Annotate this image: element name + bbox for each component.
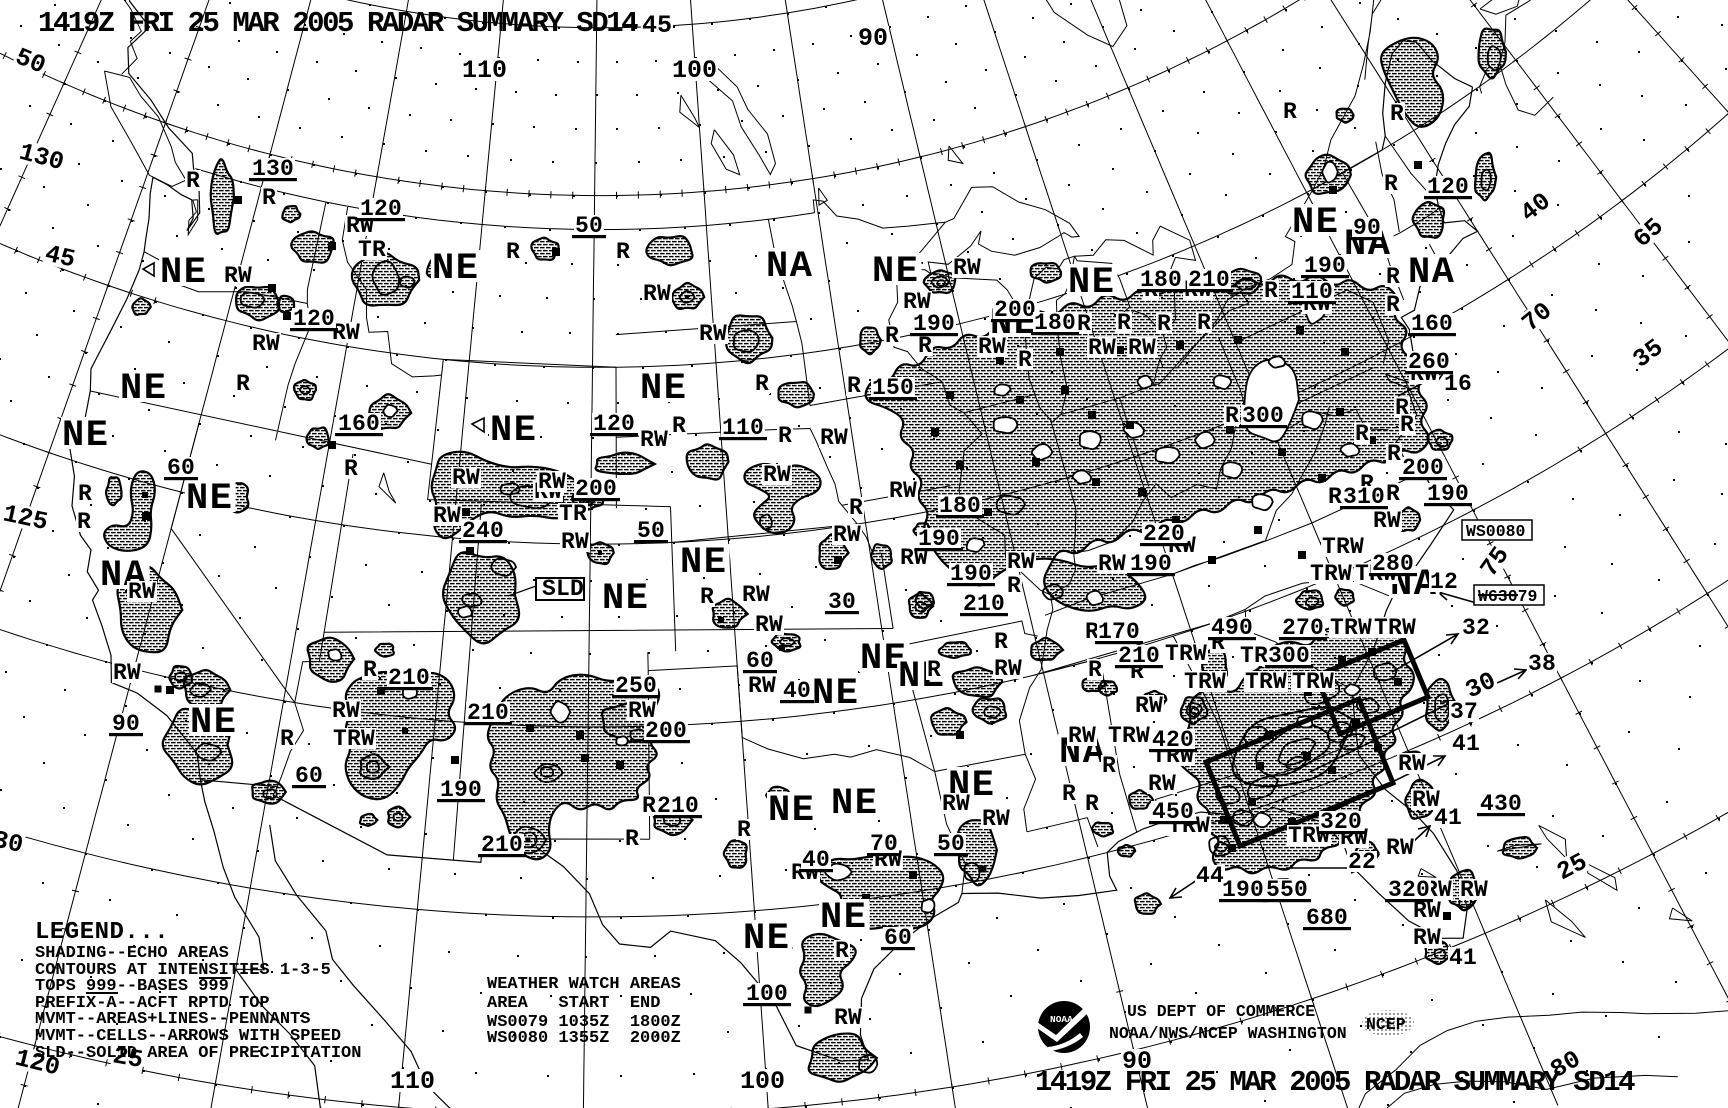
svg-text:RW: RW xyxy=(128,579,156,605)
svg-text:RW: RW xyxy=(224,263,252,289)
svg-text:WEATHER WATCH AREAS: WEATHER WATCH AREAS xyxy=(487,975,681,994)
svg-text:NE: NE xyxy=(1068,262,1115,304)
svg-text:R: R xyxy=(778,423,792,449)
svg-text:W63079: W63079 xyxy=(1478,587,1537,606)
svg-text:RW: RW xyxy=(833,522,861,548)
svg-text:R: R xyxy=(1062,781,1076,807)
svg-text:41: 41 xyxy=(1434,805,1462,831)
svg-text:R: R xyxy=(1085,791,1099,817)
svg-text:R: R xyxy=(700,584,714,610)
svg-text:TRW: TRW xyxy=(1292,669,1334,695)
svg-text:NE: NE xyxy=(831,783,878,825)
svg-text:NE: NE xyxy=(602,578,649,620)
svg-text:SLD: SLD xyxy=(542,576,584,602)
svg-text:NE: NE xyxy=(432,248,479,290)
svg-text:NE: NE xyxy=(120,368,167,410)
svg-text:TR: TR xyxy=(1240,643,1268,669)
svg-text:RW: RW xyxy=(643,281,671,307)
svg-text:RW: RW xyxy=(953,255,981,281)
svg-text:R: R xyxy=(344,456,358,482)
svg-text:TRW: TRW xyxy=(1165,641,1207,667)
svg-text:NE: NE xyxy=(62,415,109,457)
svg-text:WS0080 1355Z 2000Z: WS0080 1355Z 2000Z xyxy=(487,1029,681,1048)
svg-text:RW: RW xyxy=(942,791,970,817)
svg-text:R: R xyxy=(755,371,769,397)
svg-text:TR: TR xyxy=(559,501,587,527)
svg-text:RW: RW xyxy=(433,503,461,529)
svg-text:41: 41 xyxy=(1452,731,1480,757)
svg-text:R: R xyxy=(363,657,377,683)
svg-text:TRW: TRW xyxy=(1184,669,1226,695)
svg-text:100: 100 xyxy=(740,1067,785,1096)
svg-text:R: R xyxy=(885,323,899,349)
svg-text:R: R xyxy=(737,817,751,843)
svg-text:RW: RW xyxy=(332,320,360,346)
svg-text:RW: RW xyxy=(699,321,727,347)
svg-text:NE: NE xyxy=(1292,202,1339,244)
svg-text:RW: RW xyxy=(1373,508,1401,534)
svg-text:R: R xyxy=(642,793,656,819)
svg-text:NE: NE xyxy=(872,251,919,293)
svg-text:R: R xyxy=(77,509,91,535)
svg-text:R: R xyxy=(835,938,849,964)
svg-text:R: R xyxy=(1088,657,1102,683)
svg-text:RW: RW xyxy=(763,462,791,488)
svg-text:RW: RW xyxy=(1068,723,1096,749)
svg-text:22: 22 xyxy=(1348,849,1376,875)
svg-text:R: R xyxy=(1386,481,1400,507)
svg-text:R: R xyxy=(1007,573,1021,599)
svg-text:R: R xyxy=(616,239,630,265)
svg-text:RW: RW xyxy=(1460,877,1488,903)
svg-text:US DEPT OF COMMERCE: US DEPT OF COMMERCE xyxy=(1127,1002,1315,1021)
svg-text:NE: NE xyxy=(640,368,687,410)
svg-text:12: 12 xyxy=(1430,569,1458,595)
svg-text:R: R xyxy=(1328,484,1342,510)
svg-text:NE: NE xyxy=(490,410,537,452)
svg-text:41: 41 xyxy=(1449,945,1477,971)
svg-text:TRW: TRW xyxy=(1374,615,1416,641)
svg-text:R: R xyxy=(625,826,639,852)
svg-text:RW: RW xyxy=(332,698,360,724)
svg-text:RW: RW xyxy=(755,612,783,638)
svg-text:R: R xyxy=(849,495,863,521)
svg-text:R: R xyxy=(1400,412,1414,438)
svg-text:TRW: TRW xyxy=(1245,669,1287,695)
svg-text:RW: RW xyxy=(1098,551,1126,577)
svg-text:RW: RW xyxy=(994,656,1022,682)
svg-text:NE: NE xyxy=(190,702,237,744)
svg-text:R: R xyxy=(994,629,1008,655)
svg-text:RW: RW xyxy=(748,673,776,699)
svg-text:37: 37 xyxy=(1450,699,1478,725)
svg-text:R: R xyxy=(1102,753,1116,779)
svg-text:R: R xyxy=(1387,441,1401,467)
svg-text:R: R xyxy=(78,481,92,507)
svg-text:NE: NE xyxy=(680,542,727,584)
svg-text:RW: RW xyxy=(1088,335,1116,361)
svg-text:RW: RW xyxy=(1148,771,1176,797)
svg-text:R: R xyxy=(1264,278,1278,304)
svg-text:R: R xyxy=(1225,403,1239,429)
svg-text:NA: NA xyxy=(1408,252,1455,294)
svg-text:R: R xyxy=(1157,311,1171,337)
svg-text:45: 45 xyxy=(642,11,672,40)
svg-text:RW: RW xyxy=(1135,693,1163,719)
svg-text:RW: RW xyxy=(1007,549,1035,575)
svg-text:R: R xyxy=(1018,347,1032,373)
svg-text:TRW: TRW xyxy=(1310,561,1352,587)
svg-text:38: 38 xyxy=(1528,651,1556,677)
svg-text:R: R xyxy=(506,239,520,265)
svg-text:44: 44 xyxy=(1196,863,1224,889)
svg-text:R: R xyxy=(1283,99,1297,125)
svg-text:R: R xyxy=(186,168,200,194)
svg-text:NE: NE xyxy=(768,790,815,832)
svg-text:RW: RW xyxy=(982,806,1010,832)
svg-text:RW: RW xyxy=(1398,751,1426,777)
svg-text:100: 100 xyxy=(672,56,717,85)
svg-text:RW: RW xyxy=(820,425,848,451)
svg-text:R: R xyxy=(1390,101,1404,127)
svg-text:AREA START END: AREA START END xyxy=(487,994,660,1013)
svg-text:32: 32 xyxy=(1462,615,1490,641)
svg-text:TRW: TRW xyxy=(333,726,375,752)
svg-text:R: R xyxy=(262,185,276,211)
svg-text:RW: RW xyxy=(452,465,480,491)
svg-text:RW: RW xyxy=(1413,925,1441,951)
svg-text:SLD--SOLID AREA OF PRECIPITATI: SLD--SOLID AREA OF PRECIPITATION xyxy=(35,1044,361,1063)
svg-text:RW: RW xyxy=(978,334,1006,360)
svg-text:R: R xyxy=(236,371,250,397)
svg-text:NE: NE xyxy=(812,673,859,715)
svg-text:R: R xyxy=(1384,171,1398,197)
svg-text:WS0080: WS0080 xyxy=(1466,522,1525,541)
svg-text:RW: RW xyxy=(1128,335,1156,361)
svg-text:R: R xyxy=(280,726,294,752)
svg-text:110: 110 xyxy=(390,1067,435,1096)
svg-text:RW: RW xyxy=(1386,835,1414,861)
svg-text:RW: RW xyxy=(538,469,566,495)
svg-text:R: R xyxy=(847,373,861,399)
svg-text:R: R xyxy=(1386,292,1400,318)
svg-text:RW: RW xyxy=(640,427,668,453)
svg-text:NE: NE xyxy=(820,897,867,939)
svg-text:R: R xyxy=(1355,421,1369,447)
svg-text:TRW: TRW xyxy=(1108,723,1150,749)
svg-text:90: 90 xyxy=(858,24,888,53)
svg-text:R: R xyxy=(927,657,941,683)
svg-text:NE: NE xyxy=(160,252,207,294)
svg-text:LEGEND...: LEGEND... xyxy=(35,919,169,946)
svg-text:NOAA/NWS/NCEP WASHINGTON: NOAA/NWS/NCEP WASHINGTON xyxy=(1109,1024,1347,1043)
svg-text:1419Z FRI 25 MAR 2005 RADAR SU: 1419Z FRI 25 MAR 2005 RADAR SUMMARY SD14 xyxy=(1035,1066,1635,1099)
svg-text:R: R xyxy=(1197,310,1211,336)
svg-text:RW: RW xyxy=(742,582,770,608)
svg-text:R: R xyxy=(1077,311,1091,337)
svg-text:NOAA: NOAA xyxy=(1050,1014,1073,1025)
svg-text:NCEP: NCEP xyxy=(1366,1015,1406,1034)
svg-text:RW: RW xyxy=(252,331,280,357)
svg-text:TRW: TRW xyxy=(1330,615,1372,641)
svg-text:NE: NE xyxy=(186,478,233,520)
svg-text:NA: NA xyxy=(766,246,813,288)
svg-text:RW: RW xyxy=(834,1005,862,1031)
svg-text:R: R xyxy=(1117,310,1131,336)
svg-text:R: R xyxy=(672,413,686,439)
svg-text:RW: RW xyxy=(889,478,917,504)
svg-text:TRW: TRW xyxy=(1322,534,1364,560)
svg-text:NE: NE xyxy=(743,918,790,960)
svg-text:1419Z FRI 25 MAR 2005 RADAR SU: 1419Z FRI 25 MAR 2005 RADAR SUMMARY SD14 xyxy=(38,7,638,40)
svg-text:R: R xyxy=(1386,264,1400,290)
svg-text:RW: RW xyxy=(113,660,141,686)
svg-text:110: 110 xyxy=(462,56,507,85)
svg-text:RW: RW xyxy=(561,529,589,555)
svg-text:TR: TR xyxy=(358,237,386,263)
